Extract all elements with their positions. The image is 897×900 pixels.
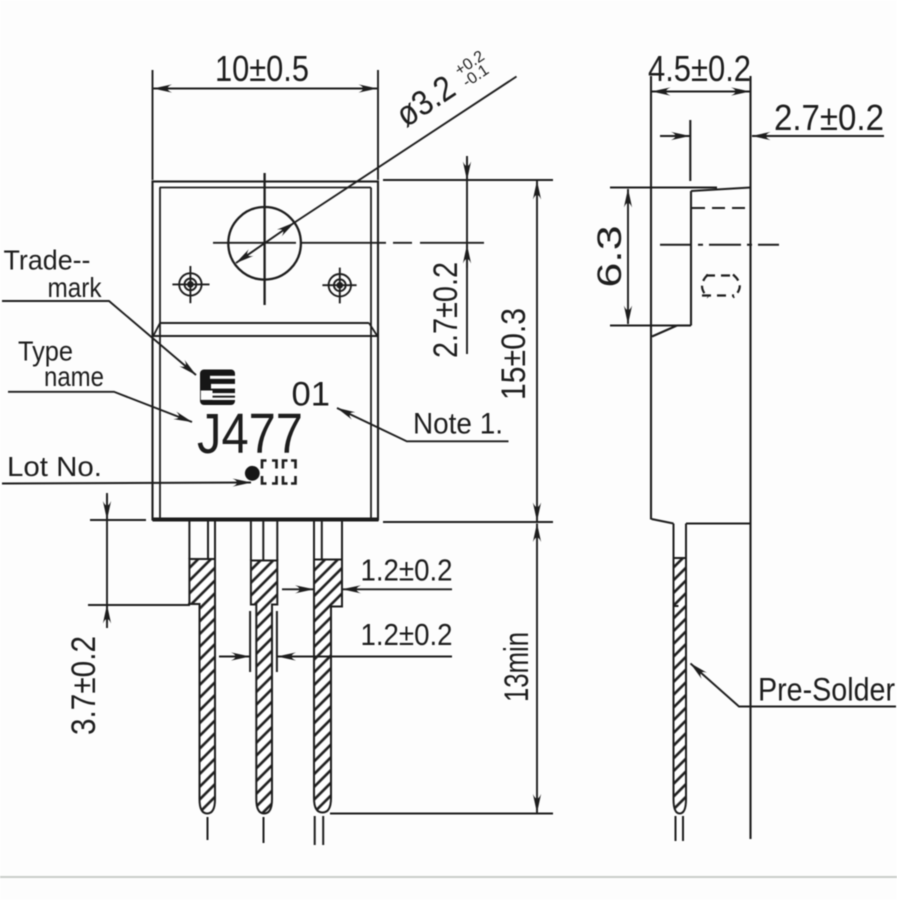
svg-text:10±0.5: 10±0.5 [215,48,309,89]
svg-text:Trade--: Trade-- [4,245,91,276]
svg-text:Pre-Solder: Pre-Solder [758,672,895,708]
svg-text:J477: J477 [197,402,303,466]
svg-text:Note 1.: Note 1. [413,408,503,441]
svg-text:13min: 13min [498,632,536,702]
svg-text:Lot No.: Lot No. [7,451,102,482]
svg-text:name: name [44,361,104,392]
svg-text:2.7±0.2: 2.7±0.2 [427,262,465,358]
svg-text:6.3: 6.3 [591,226,629,288]
svg-text:4.5±0.2: 4.5±0.2 [648,48,751,89]
svg-text:1.2±0.2: 1.2±0.2 [361,617,453,652]
svg-text:1.2±0.2: 1.2±0.2 [361,553,453,588]
svg-text:2.7±0.2: 2.7±0.2 [774,97,884,138]
svg-text:01: 01 [292,376,331,414]
svg-text:3.7±0.2: 3.7±0.2 [65,636,103,735]
svg-text:15±0.3: 15±0.3 [495,308,533,400]
svg-text:mark: mark [48,272,103,303]
